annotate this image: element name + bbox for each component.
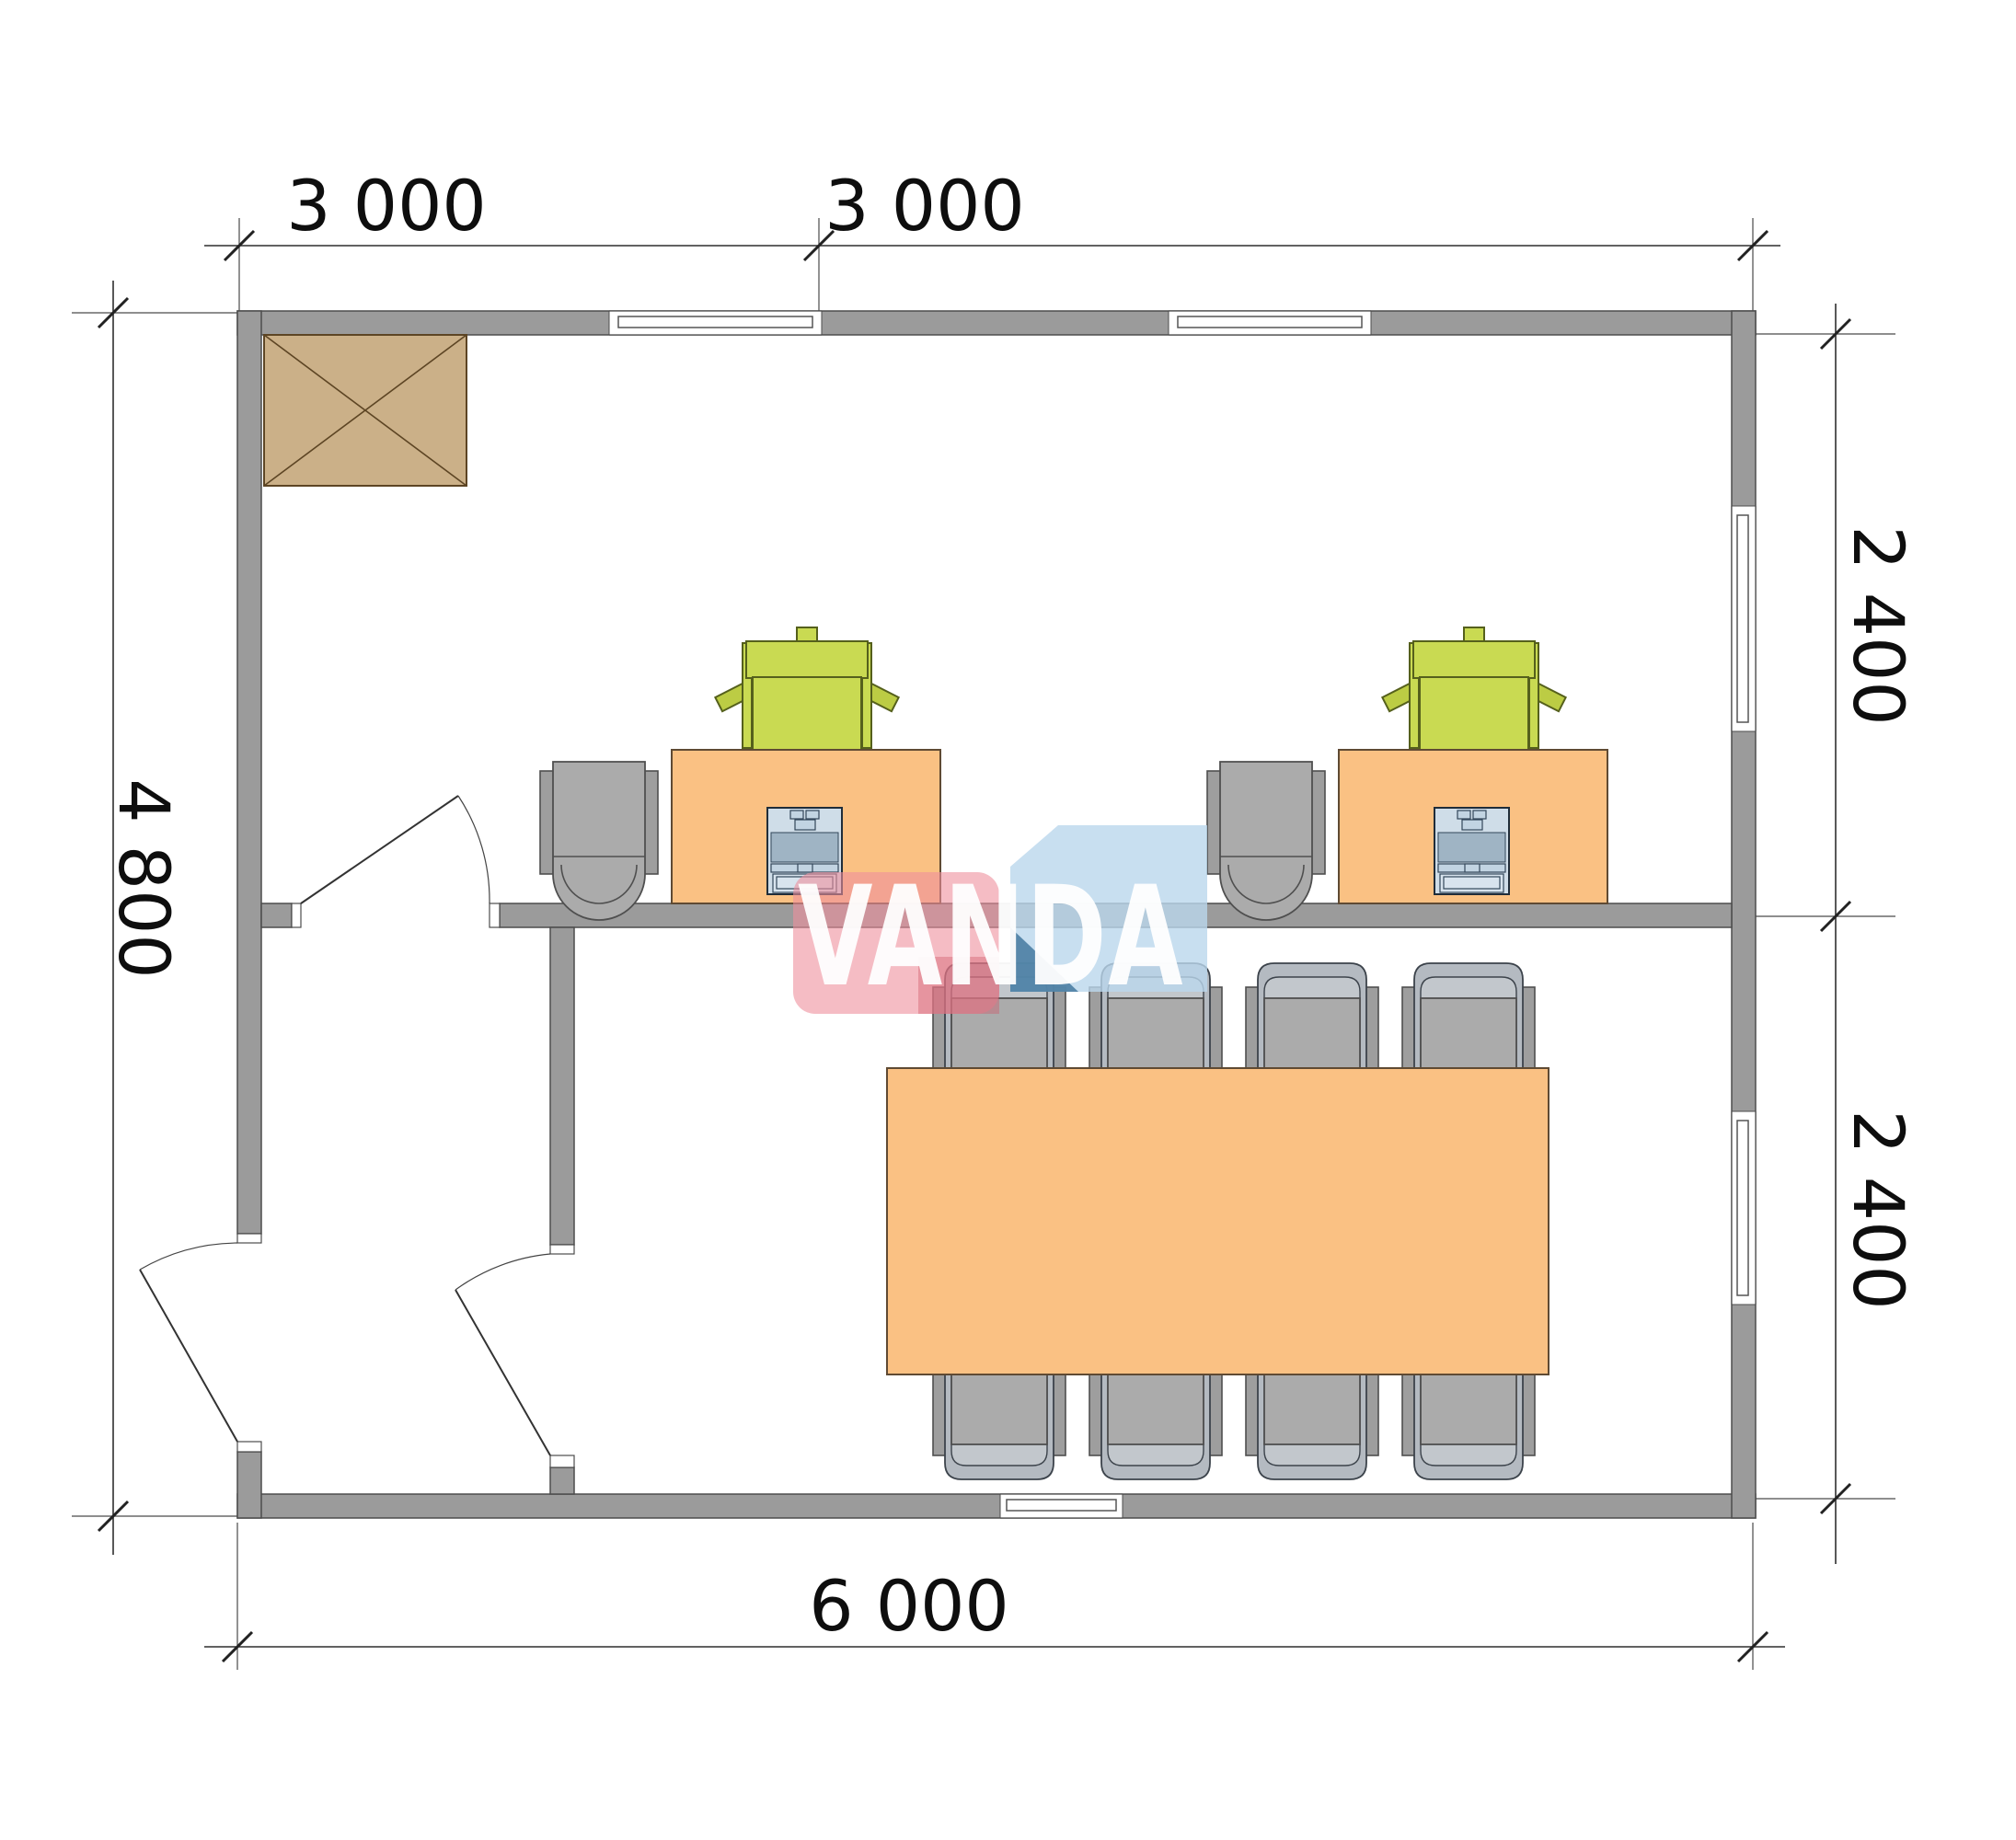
floor-plan-canvas: 3 000 3 000 4 800 2 400 2 400 6 000 (0, 0, 2016, 1840)
window-top-2 (1169, 311, 1371, 335)
partition-vertical-lower (550, 1467, 574, 1494)
door-partition-vertical (455, 1245, 574, 1467)
dim-right-upper-label: 2 400 (1837, 525, 1919, 726)
wall-left-lower (237, 1452, 261, 1518)
window-right-lower (1732, 1111, 1756, 1305)
conference-table (887, 1068, 1549, 1374)
dimension-right: 2 400 2 400 (1732, 304, 1919, 1564)
door-partition-horizontal (292, 796, 500, 927)
window-right-upper (1732, 506, 1756, 731)
crossed-hatch-box (264, 335, 467, 486)
partition-vertical-upper (550, 927, 574, 1245)
partition-horizontal-stub (261, 903, 292, 927)
desk-with-chairs-right (1207, 627, 1607, 920)
floor-plan-svg: 3 000 3 000 4 800 2 400 2 400 6 000 (0, 0, 2016, 1840)
conference-chairs-bottom-row (933, 1374, 1535, 1479)
dimension-top: 3 000 3 000 (204, 165, 1780, 311)
window-top-1 (609, 311, 822, 335)
dimension-bottom: 6 000 (204, 1523, 1785, 1670)
dimension-left: 4 800 (72, 281, 237, 1555)
workstation-right (1207, 627, 1607, 920)
logo-text: VANDA (798, 857, 1184, 1018)
window-bottom (1000, 1494, 1123, 1518)
wall-left-upper (237, 311, 261, 1234)
dim-top-right-label: 3 000 (824, 165, 1025, 247)
wall-right (1732, 311, 1756, 1518)
dim-top-left-label: 3 000 (286, 165, 487, 247)
dim-left-label: 4 800 (103, 778, 185, 979)
door-exterior-left (140, 1234, 261, 1452)
wall-bottom (237, 1494, 1756, 1518)
wall-top (237, 311, 1756, 335)
conference-set (887, 963, 1549, 1479)
dim-bottom-label: 6 000 (809, 1565, 1009, 1647)
dim-right-lower-label: 2 400 (1837, 1110, 1919, 1310)
